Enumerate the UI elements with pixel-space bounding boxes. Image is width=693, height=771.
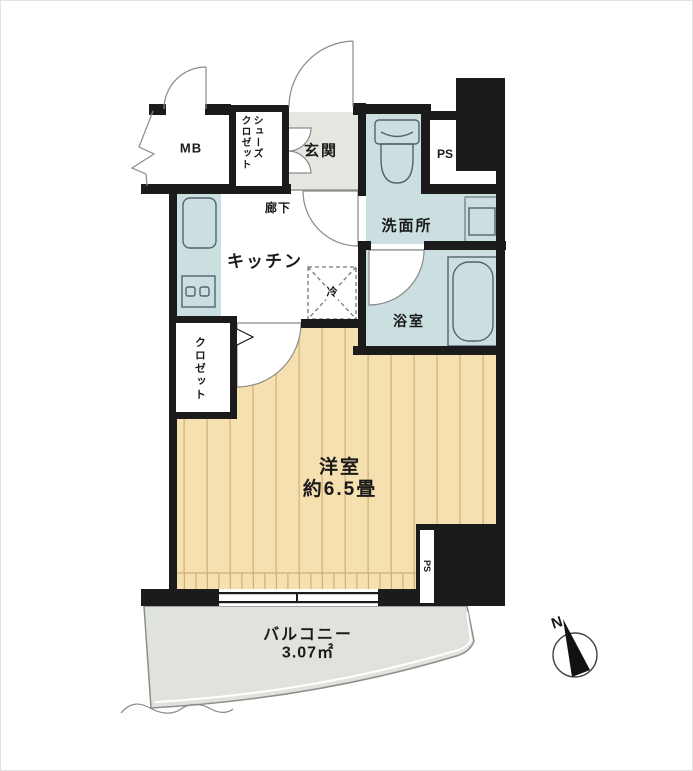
compass-needle — [563, 619, 590, 677]
label-hallway: 廊下 — [265, 202, 291, 216]
label-kitchen: キッチン — [227, 252, 303, 272]
label-shoes-closet-line2: クロゼット — [238, 115, 250, 185]
label-closet: クロゼット — [193, 337, 206, 402]
label-balcony-area: 3.07㎡ — [263, 645, 353, 663]
label-refrigerator: 冷 — [326, 287, 339, 300]
label-ps-upper: PS — [437, 148, 453, 162]
entrance-door — [289, 41, 353, 107]
label-washroom: 洗面所 — [381, 217, 432, 234]
label-bathroom: 浴室 — [393, 313, 425, 329]
mb-door — [164, 67, 206, 109]
label-ps-lower: PS — [422, 560, 432, 572]
washroom-door-arc — [303, 191, 358, 246]
label-room-size: 約6.5畳 — [303, 479, 377, 501]
label-mb: MB — [180, 142, 202, 157]
balcony-window — [219, 589, 378, 606]
floorplan-canvas: MB シューズ クロゼット 玄関 PS 洗面所 廊下 キッチン 冷 浴室 クロゼ… — [0, 0, 693, 771]
label-shoes-closet: シューズ クロゼット — [238, 115, 262, 185]
label-shoes-closet-line1: シューズ — [250, 115, 262, 185]
label-entrance: 玄関 — [304, 142, 338, 159]
label-balcony-name: バルコニー — [263, 627, 353, 645]
wall-break-line — [132, 111, 154, 186]
label-balcony: バルコニー 3.07㎡ — [263, 627, 353, 664]
label-main-room: 洋室 約6.5畳 — [303, 457, 377, 501]
label-room-name: 洋室 — [303, 457, 377, 479]
